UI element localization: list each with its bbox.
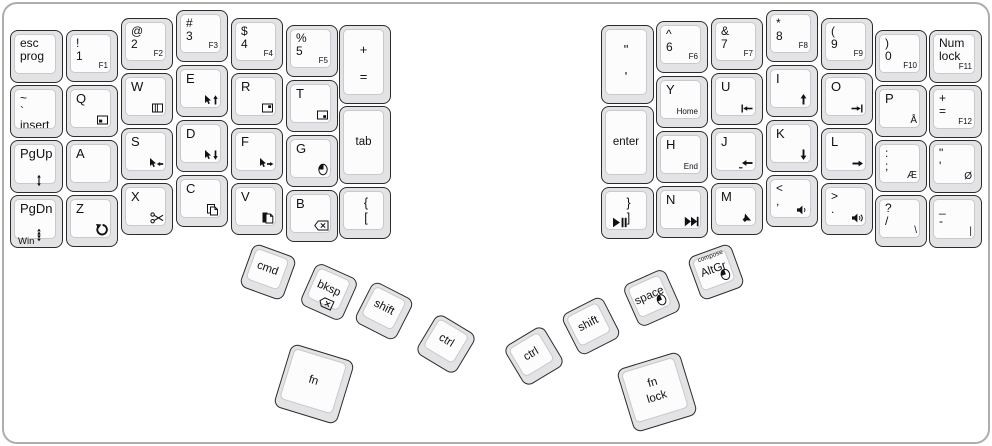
key-label: Y [666, 83, 700, 98]
key-corner-label: Æ [907, 171, 917, 181]
key-label: { [349, 196, 383, 211]
key-slash[interactable]: ?/\ [875, 195, 927, 247]
key-label: ctrl [436, 331, 457, 352]
keyboard: escprog~`insertPgUpPgDnWin!1F1QAZ@2F2WSX… [0, 0, 992, 446]
key-label: P [885, 92, 919, 107]
key-face: A [70, 144, 111, 183]
key-z[interactable]: Z [66, 195, 118, 247]
key-label: L [831, 135, 865, 150]
key-label: # [186, 17, 220, 30]
key-t[interactable]: T [286, 80, 338, 132]
window-bottomright-icon [316, 109, 329, 121]
key-corner-label: \ [914, 226, 917, 236]
key-9[interactable]: (9F9 [821, 18, 873, 70]
key-6[interactable]: ^6F6 [656, 21, 708, 73]
key-corner-label: Home [677, 108, 698, 116]
key-label: O [831, 80, 865, 95]
volume-down-icon [796, 204, 809, 216]
key-y[interactable]: YHome [656, 76, 708, 128]
key-lbracket[interactable]: {[ [339, 187, 391, 239]
key-label: V [241, 190, 275, 205]
key-label: F [241, 135, 275, 150]
key-l[interactable]: L [821, 128, 873, 180]
key-corner-label: Å [910, 116, 917, 126]
key-corner-label: F6 [689, 53, 698, 61]
key-g[interactable]: G [286, 135, 338, 187]
window-topright-icon [261, 102, 274, 114]
key-x[interactable]: X [121, 183, 173, 235]
arrow-down-icon [798, 148, 809, 161]
key-enter[interactable]: enter [601, 106, 654, 184]
key-i[interactable]: I [766, 65, 818, 117]
key-label: [ [349, 211, 383, 226]
key-face: += [343, 29, 384, 95]
key-corner-label: F1 [99, 62, 108, 70]
mouse-button-icon [317, 163, 329, 176]
key-label: % [296, 32, 330, 45]
key-2[interactable]: @2F2 [121, 18, 173, 70]
line-start-icon [740, 103, 754, 114]
line-end-icon [850, 103, 864, 114]
arrow-up-icon [798, 93, 809, 106]
key-face: shift [565, 302, 611, 347]
key-label: N [666, 193, 700, 208]
key-label: esc [20, 37, 55, 50]
key-label: Num [939, 37, 974, 50]
key-1[interactable]: !1F1 [66, 30, 118, 82]
key-quote[interactable]: "'Ø [929, 140, 982, 193]
key-label: K [776, 127, 810, 142]
key-j[interactable]: J [711, 128, 763, 180]
key-corner-label: | [969, 227, 972, 237]
key-label: ^ [666, 28, 700, 41]
key-e[interactable]: E [176, 65, 228, 117]
key-period[interactable]: >. [821, 183, 873, 235]
key-label: fn [307, 373, 321, 390]
key-a[interactable]: A [66, 140, 118, 192]
key-corner-label: F3 [209, 42, 218, 50]
key-label: ~ [20, 92, 55, 105]
key-n[interactable]: N [656, 186, 708, 238]
key-rbracket[interactable]: }] [601, 187, 654, 239]
key-f[interactable]: F [231, 128, 283, 180]
key-corner-label: F7 [744, 50, 753, 58]
key-m[interactable]: M [711, 183, 763, 235]
key-s[interactable]: S [121, 128, 173, 180]
key-label: $ [241, 25, 275, 38]
key-label: = [344, 64, 383, 91]
key-label: R [241, 80, 275, 95]
key-label: T [296, 87, 330, 102]
volume-up-icon [851, 212, 864, 224]
cut-icon [150, 212, 164, 224]
key-4[interactable]: $4F4 [231, 18, 283, 70]
key-face: ~`insert [14, 89, 56, 129]
key-label: & [721, 25, 755, 38]
key-label: X [131, 190, 165, 205]
window-bottomleft-icon [96, 114, 109, 126]
key-corner-label: F10 [903, 62, 917, 70]
key-label: ' [606, 64, 646, 91]
key-label: U [721, 80, 755, 95]
key-corner-label: F12 [958, 118, 972, 126]
key-label: cmd [255, 258, 281, 279]
key-label: * [776, 17, 810, 30]
key-label: _ [939, 202, 974, 215]
key-label: " [606, 37, 646, 64]
key-label: ! [76, 37, 110, 50]
key-corner-label: F11 [959, 63, 972, 71]
mouse-cursor-left-icon [148, 157, 164, 169]
key-label: bksp [315, 277, 343, 301]
key-label: I [776, 72, 810, 87]
key-label: prog [20, 50, 55, 63]
arrow-left-icon [738, 158, 754, 169]
key-face: "' [605, 29, 647, 95]
key-comma[interactable]: <, [766, 175, 818, 227]
key-numlock[interactable]: NumlockF11 [929, 30, 982, 83]
scroll-down-icon [35, 228, 44, 242]
key-label: enter [613, 135, 639, 150]
key-v[interactable]: V [231, 183, 283, 235]
key-plus-equals[interactable]: += [339, 25, 391, 104]
key-b[interactable]: B [286, 190, 338, 242]
key-p[interactable]: PÅ [875, 85, 927, 137]
key-u[interactable]: U [711, 73, 763, 125]
backspace-icon [314, 220, 329, 231]
key-label: @ [131, 25, 165, 38]
key-face: escprog [14, 34, 56, 74]
key-label: Z [76, 202, 110, 217]
key-f12[interactable]: +=F12 [929, 85, 982, 138]
key-face: enter [605, 110, 647, 175]
key-label: C [186, 182, 220, 197]
key-face: tab [343, 110, 384, 175]
undo-icon [95, 223, 109, 236]
key-label: shift [576, 313, 602, 336]
key-quote-tall[interactable]: "' [601, 25, 654, 104]
key-face: fn [279, 348, 347, 415]
key-label: lock [645, 387, 669, 407]
key-7[interactable]: &7F7 [711, 18, 763, 70]
key-label: } [611, 196, 646, 211]
paste-icon [261, 211, 274, 224]
key-tab[interactable]: tab [339, 106, 391, 184]
key-label: tab [356, 135, 372, 150]
mouse-cursor-up-icon [203, 94, 219, 106]
key-label: ctrl [521, 344, 542, 365]
key-label: E [186, 72, 220, 87]
key-label: B [296, 197, 330, 212]
key-h[interactable]: HEnd [656, 131, 708, 183]
key-bottom-label: Win [18, 237, 34, 247]
key-label: + [344, 37, 383, 64]
key-q[interactable]: Q [66, 85, 118, 137]
window-panes-icon [151, 102, 164, 114]
key-label: ) [885, 37, 919, 50]
scroll-up-icon [35, 174, 44, 187]
key-8[interactable]: *8F8 [766, 10, 818, 62]
key-label: shift [371, 297, 397, 320]
key-label: > [831, 190, 865, 203]
key-corner-label: Ø [964, 172, 972, 182]
key-face: cmd [245, 248, 289, 291]
play-pause-icon [612, 217, 627, 228]
key-label: Q [76, 92, 110, 107]
key-label: + [939, 92, 974, 105]
arrow-right-icon [851, 158, 864, 169]
key-corner-label: F4 [264, 50, 273, 58]
key-label: insert [20, 119, 55, 129]
key-label: W [131, 80, 165, 95]
copy-icon [206, 203, 219, 216]
key-w[interactable]: W [121, 73, 173, 125]
mute-icon [741, 211, 754, 224]
key-dash[interactable]: _-| [929, 195, 982, 248]
key-label: ( [831, 25, 865, 38]
key-label: ` [20, 105, 55, 118]
key-label: ? [885, 202, 919, 215]
key-tilde[interactable]: ~`insert [10, 85, 63, 138]
key-corner-label: F5 [319, 57, 328, 65]
key-label: H [666, 138, 700, 153]
next-track-icon [684, 216, 699, 227]
key-semicolon[interactable]: :;Æ [875, 140, 927, 192]
key-k[interactable]: K [766, 120, 818, 172]
key-label: PgDn [20, 202, 55, 217]
key-label: J [721, 135, 755, 150]
key-pgup[interactable]: PgUp [10, 140, 63, 193]
key-label: A [76, 147, 110, 162]
key-label: S [131, 135, 165, 150]
mouse-cursor-right-icon [258, 157, 274, 169]
key-corner-label: F9 [854, 50, 863, 58]
key-label: : [885, 147, 919, 160]
key-o[interactable]: O [821, 73, 873, 125]
key-face: {[ [343, 191, 384, 230]
key-label: < [776, 182, 810, 195]
key-r[interactable]: R [231, 73, 283, 125]
key-label: PgUp [20, 147, 55, 162]
key-pgdn[interactable]: PgDnWin [10, 195, 63, 248]
key-corner-label: F8 [799, 42, 808, 50]
key-d[interactable]: D [176, 120, 228, 172]
key-c[interactable]: C [176, 175, 228, 227]
key-0[interactable]: )0F10 [875, 30, 927, 82]
key-5[interactable]: %5F5 [286, 25, 338, 77]
key-face: fnlock [621, 357, 689, 424]
key-esc[interactable]: escprog [10, 30, 63, 83]
key-3[interactable]: #3F3 [176, 10, 228, 62]
key-label: D [186, 127, 220, 142]
key-label: " [939, 147, 974, 160]
mouse-cursor-down-icon [203, 149, 219, 161]
key-label: M [721, 190, 755, 205]
key-corner-label: F2 [154, 50, 163, 58]
key-corner-label: End [684, 163, 698, 171]
key-label: G [296, 142, 330, 157]
